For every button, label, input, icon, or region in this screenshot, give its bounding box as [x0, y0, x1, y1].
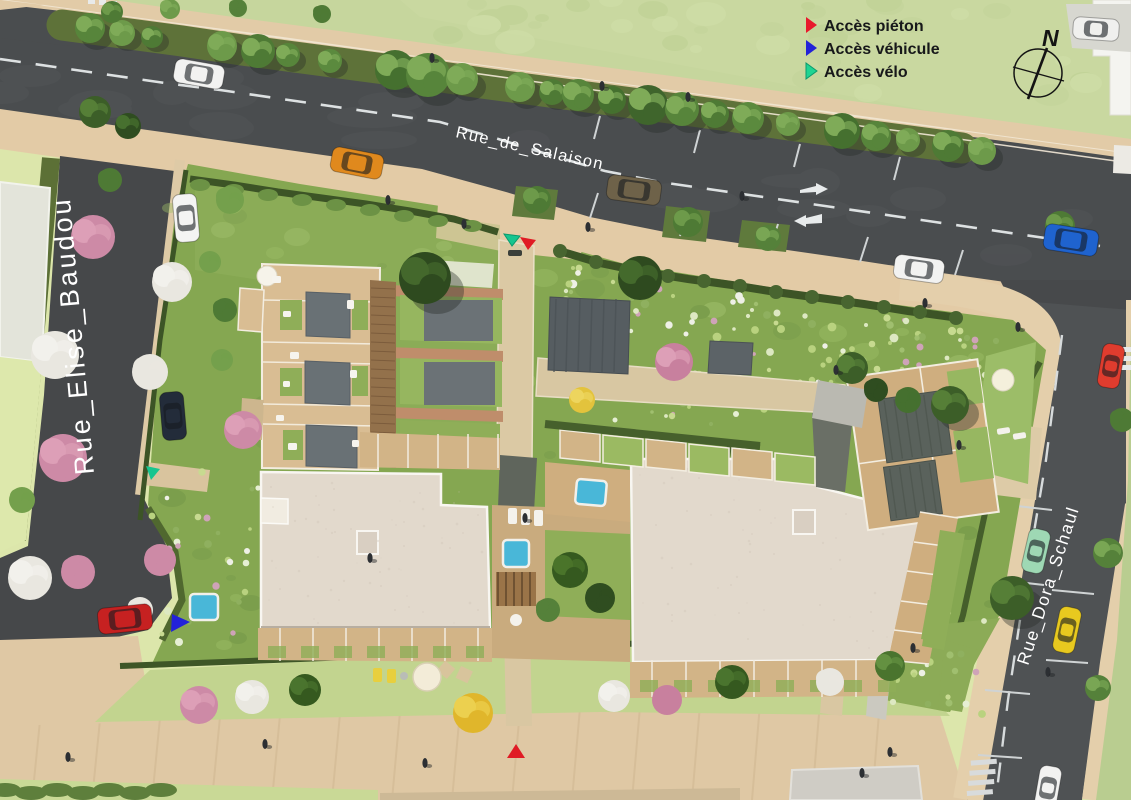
svg-text:Accès piéton: Accès piéton [824, 18, 924, 35]
svg-text:Accès véhicule: Accès véhicule [824, 41, 940, 58]
svg-text:Accès vélo: Accès vélo [824, 64, 908, 81]
svg-text:N: N [1042, 25, 1059, 51]
